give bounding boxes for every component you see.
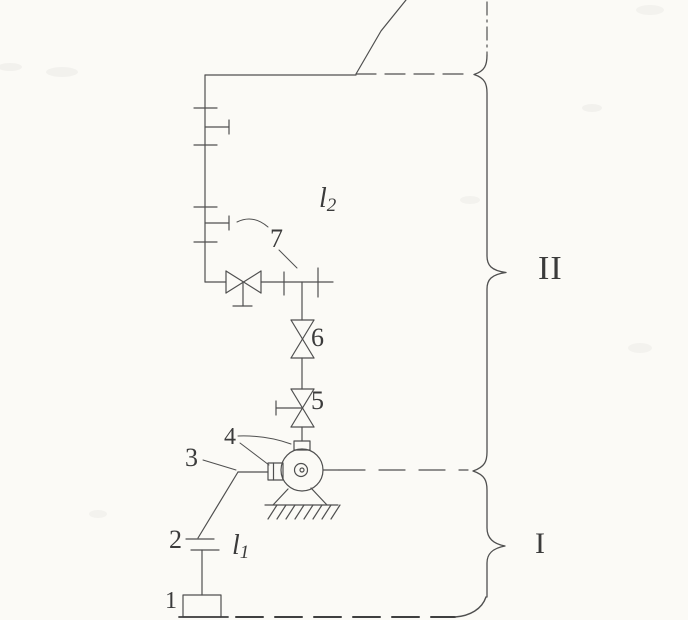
label-part-1: 1 <box>165 588 177 614</box>
pump-installation-diagram: 7 6 5 4 3 2 1 l2 l1 II I <box>0 0 688 620</box>
label-part-3: 3 <box>185 443 198 472</box>
label-part-7: 7 <box>270 224 283 253</box>
diagram-canvas: 7 6 5 4 3 2 1 l2 l1 II I <box>0 0 688 620</box>
l1-subscript: 1 <box>240 542 250 563</box>
label-section-II: II <box>538 250 563 287</box>
label-part-5: 5 <box>311 386 324 415</box>
label-part-2: 2 <box>169 525 182 554</box>
label-section-I: I <box>535 527 545 560</box>
paper-background <box>0 0 688 620</box>
l2-subscript: 2 <box>327 195 337 216</box>
label-part-6: 6 <box>311 323 324 352</box>
label-part-4: 4 <box>224 424 236 450</box>
